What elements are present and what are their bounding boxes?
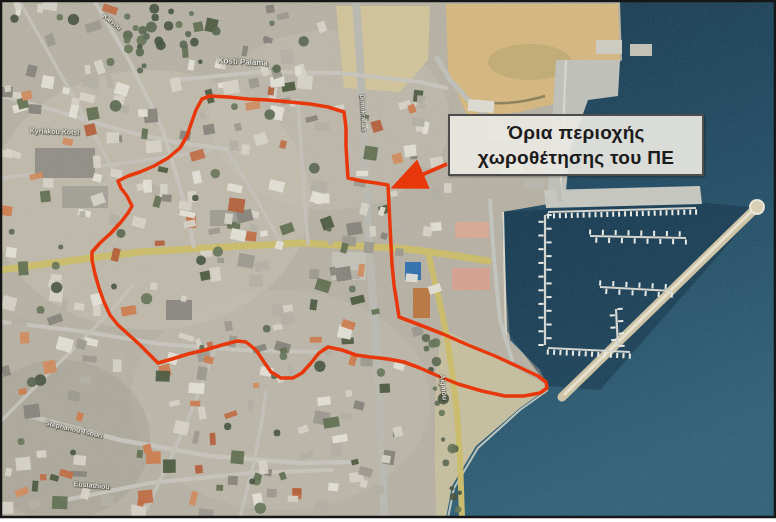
callout-line-2: χωροθέτησης του ΠΕ xyxy=(450,145,702,170)
map-screenshot: Kosti PalamaKyriakou KotsiKalvouDimokrat… xyxy=(0,0,776,522)
callout-line-1: Όρια περιοχής xyxy=(450,120,702,145)
photo-grain xyxy=(2,2,774,516)
boundary-callout: Όρια περιοχής χωροθέτησης του ΠΕ xyxy=(448,114,704,176)
satellite-map xyxy=(0,0,776,522)
